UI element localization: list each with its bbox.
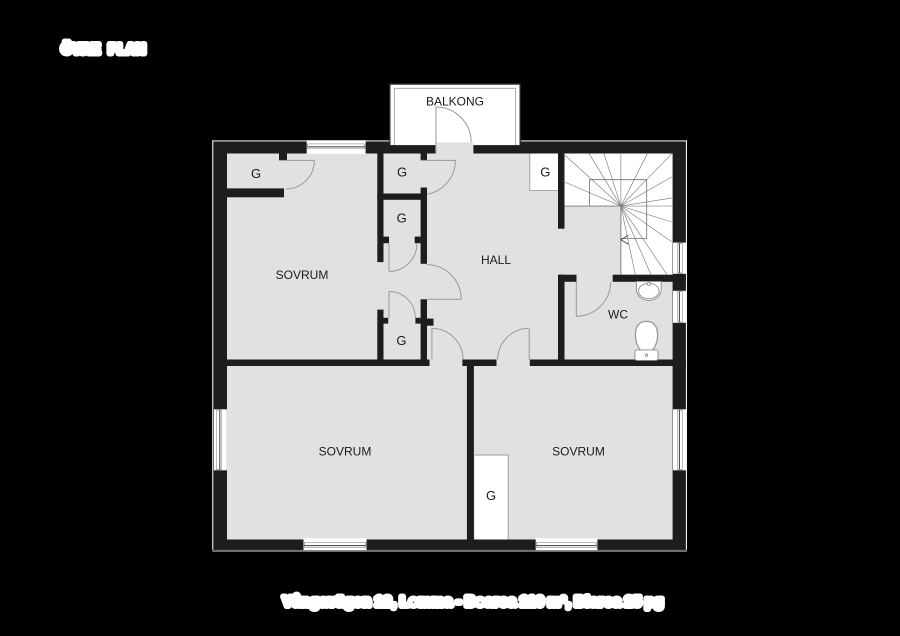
svg-text:WC: WC — [608, 307, 628, 321]
svg-text:SOVRUM: SOVRUM — [552, 445, 605, 459]
svg-text:G: G — [396, 333, 406, 348]
svg-text:G: G — [486, 488, 496, 503]
svg-text:ÖVRE: ÖVRE — [62, 41, 100, 56]
svg-text:G: G — [251, 166, 261, 181]
svg-text:BALKONG: BALKONG — [426, 95, 484, 109]
svg-text:Vångavägen 12, Lomma - Boarea: Vångavägen 12, Lomma - Boarea 110 m², Bi… — [283, 594, 664, 609]
svg-text:HALL: HALL — [481, 253, 511, 267]
svg-text:G: G — [397, 210, 407, 225]
svg-text:G: G — [540, 165, 550, 180]
svg-text:PLAN: PLAN — [109, 41, 146, 56]
svg-text:SOVRUM: SOVRUM — [319, 445, 372, 459]
svg-text:SOVRUM: SOVRUM — [276, 268, 329, 282]
svg-text:G: G — [397, 165, 407, 180]
